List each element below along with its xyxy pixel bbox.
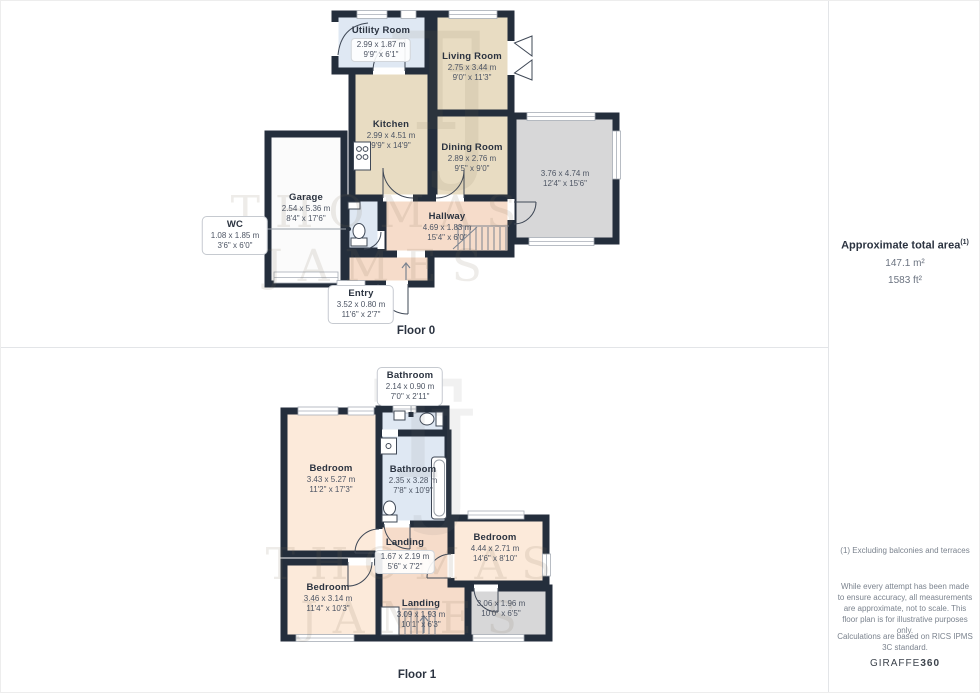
floor1-label: Floor 1 <box>398 669 436 681</box>
room-label-utility: Utility Room 2.99 x 1.87 m 9'9" x 6'1" <box>351 25 411 62</box>
toilet-main-icon <box>382 501 397 522</box>
calculations-text: Calculations are based on RICS IPMS 3C s… <box>837 631 973 653</box>
sink-top-icon <box>394 411 405 420</box>
room-label-entry: Entry 3.52 x 0.80 m 11'6" x 2'7" <box>328 285 394 324</box>
room-label-bedroom-right: Bedroom 4.44 x 2.71 m 14'6" x 8'10" <box>471 532 519 564</box>
total-area-m2: 147.1 m² <box>829 258 980 269</box>
giraffe360-logo-360: 360 <box>920 658 940 669</box>
disclaimer-text: While every attempt has been made to ens… <box>837 581 973 636</box>
giraffe360-logo: GIRAFFE360 <box>829 658 980 669</box>
room-label-landing-upper: Landing 1.67 x 2.19 m 5'6" x 7'2" <box>375 537 435 574</box>
floor0-label: Floor 0 <box>397 325 435 337</box>
room-label-bedroom-left: Bedroom 3.43 x 5.27 m 11'2" x 17'3" <box>307 463 355 495</box>
sidebar: Approximate total area(1) 147.1 m² 1583 … <box>829 1 980 693</box>
total-area-block: Approximate total area(1) 147.1 m² 1583 … <box>829 239 980 286</box>
shower-icon <box>381 438 397 454</box>
area-footnote-ref: (1) <box>960 239 969 246</box>
room-label-conservatory: 3.76 x 4.74 m 12'4" x 15'6" <box>541 169 589 189</box>
room-label-kitchen: Kitchen 2.99 x 4.51 m 9'9" x 14'9" <box>367 119 415 151</box>
room-label-hallway: Hallway 4.69 x 1.83 m 15'4" x 6'0" <box>423 211 471 243</box>
room-label-landing-lower: Landing 3.09 x 1.93 m 10'1" x 6'3" <box>397 598 445 630</box>
room-label-garage: Garage 2.54 x 5.36 m 8'4" x 17'6" <box>282 192 330 224</box>
room-label-bedroom-back: Bedroom 3.46 x 3.14 m 11'4" x 10'3" <box>304 582 352 614</box>
room-label-bathroom-top: Bathroom 2.14 x 0.90 m 7'0" x 2'11" <box>377 367 443 406</box>
floor-divider <box>1 347 828 348</box>
room-label-bathroom-main: Bathroom 2.35 x 3.28 m 7'8" x 10'9" <box>389 464 437 496</box>
total-area-title: Approximate total area(1) <box>829 239 980 252</box>
french-doors-icon <box>515 36 533 80</box>
giraffe360-logo-text: GIRAFFE <box>870 658 920 669</box>
floorplan-page: T J THOMAS JAMES T J THOMAS JAMES Utilit… <box>0 0 980 693</box>
total-area-ft2: 1583 ft² <box>829 275 980 286</box>
room-label-living: Living Room 2.75 x 3.44 m 9'0" x 11'3" <box>442 51 502 83</box>
entry-room <box>346 254 431 284</box>
toilet-top-icon <box>420 412 443 426</box>
room-label-dining: Dining Room 2.89 x 2.76 m 9'5" x 9'0" <box>441 142 502 174</box>
room-label-store: 3.06 x 1.96 m 10'0" x 6'5" <box>477 599 525 619</box>
area-footnote: (1) Excluding balconies and terraces <box>835 545 975 556</box>
room-label-wc: WC 1.08 x 1.85 m 3'6" x 6'0" <box>202 216 268 255</box>
